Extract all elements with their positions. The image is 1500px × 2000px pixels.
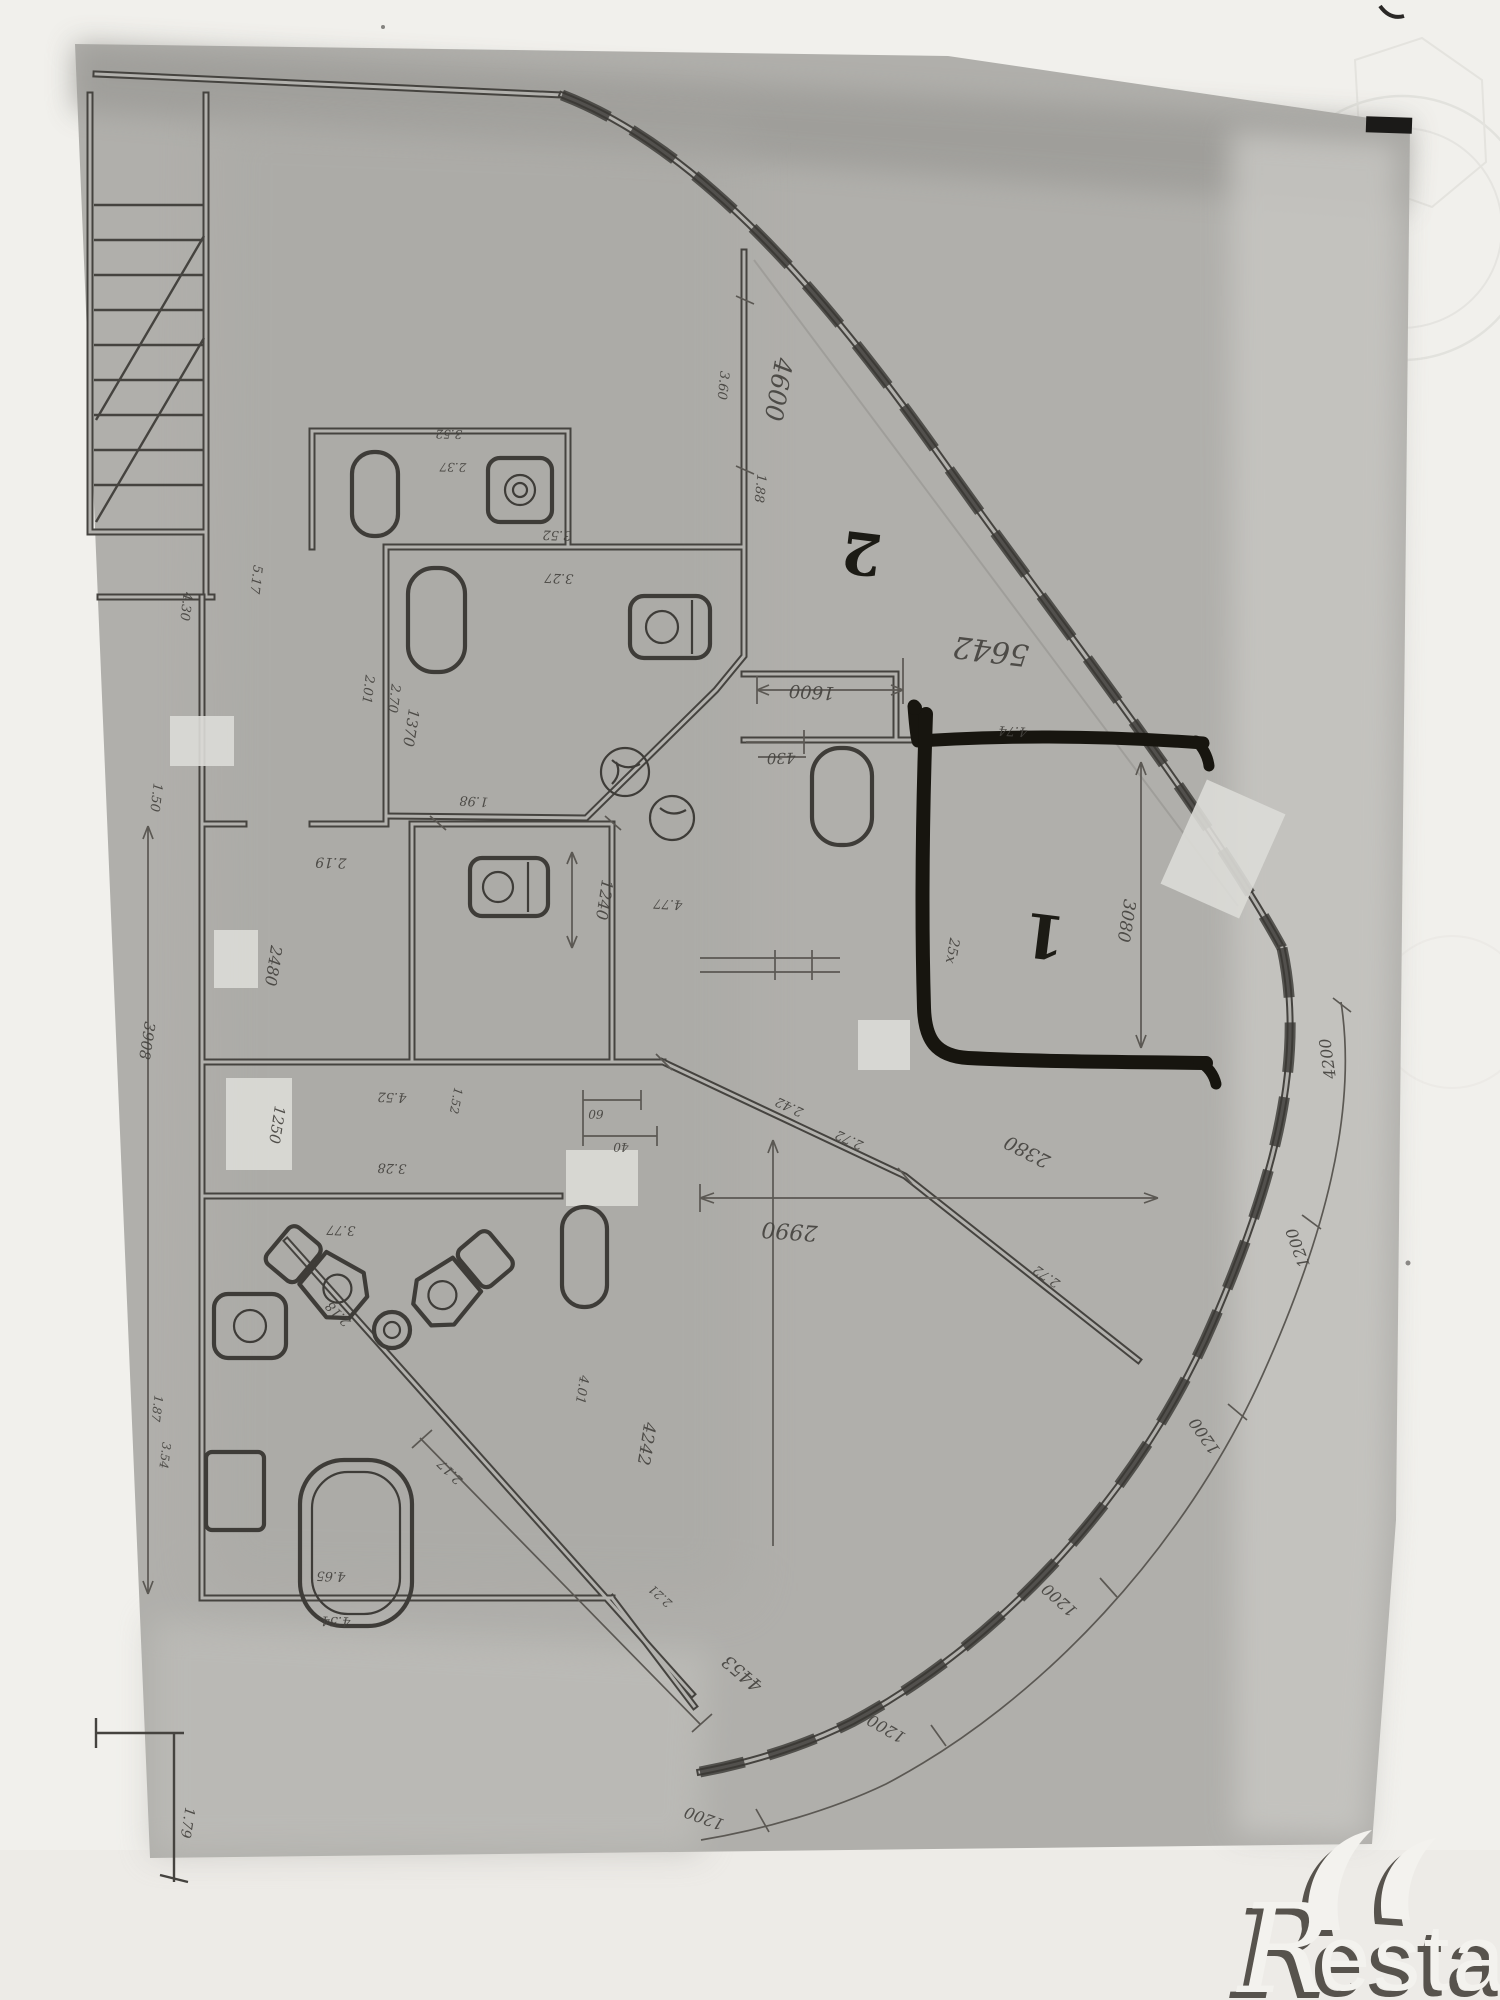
watermark-estate: estate <box>1318 1905 1500 2000</box>
dimension-label: 3.52 <box>542 526 571 542</box>
dimension-label: 2.19 <box>315 853 348 870</box>
screenshot: 2146003.601.88564216004304.7425x30803.52… <box>0 0 1500 2000</box>
dimension-label: 4.74 <box>998 722 1029 739</box>
dimension-label: 4.52 <box>377 1088 407 1104</box>
dimension-label: 60 <box>588 1107 604 1121</box>
room-number-2: 2 <box>837 517 885 589</box>
dimension-label: 3.77 <box>325 1221 355 1237</box>
marker-blob <box>908 701 922 715</box>
dimension-label: 1600 <box>788 680 835 703</box>
dimension-label: 3.28 <box>377 1159 406 1175</box>
scan-black-mark <box>1366 116 1413 134</box>
dimension-label: 3.52 <box>435 427 462 441</box>
dimension-label: 3.27 <box>543 569 573 585</box>
dimension-label: 40 <box>613 1140 630 1154</box>
dimension-label: 3.60 <box>714 370 732 400</box>
sheet-bottom-light <box>152 1620 710 1854</box>
dimension-label: 1.98 <box>459 792 489 808</box>
dimension-label: 2990 <box>761 1216 820 1245</box>
sheet-left-shading <box>205 100 745 1600</box>
dimension-label: 4.65 <box>316 1567 346 1583</box>
dimension-label: 430 <box>766 749 796 768</box>
dimension-label: 4.54 <box>321 1612 351 1628</box>
sheet-right-light-strip <box>1230 130 1400 1838</box>
room-number-1: 1 <box>1020 898 1070 973</box>
scanned-floor-plan-photo: 2146003.601.88564216004304.7425x30803.52… <box>0 0 1500 2000</box>
dimension-label: 2.37 <box>439 460 467 474</box>
dimension-label: 1.88 <box>751 473 769 503</box>
dimension-label: 4.77 <box>652 895 683 912</box>
